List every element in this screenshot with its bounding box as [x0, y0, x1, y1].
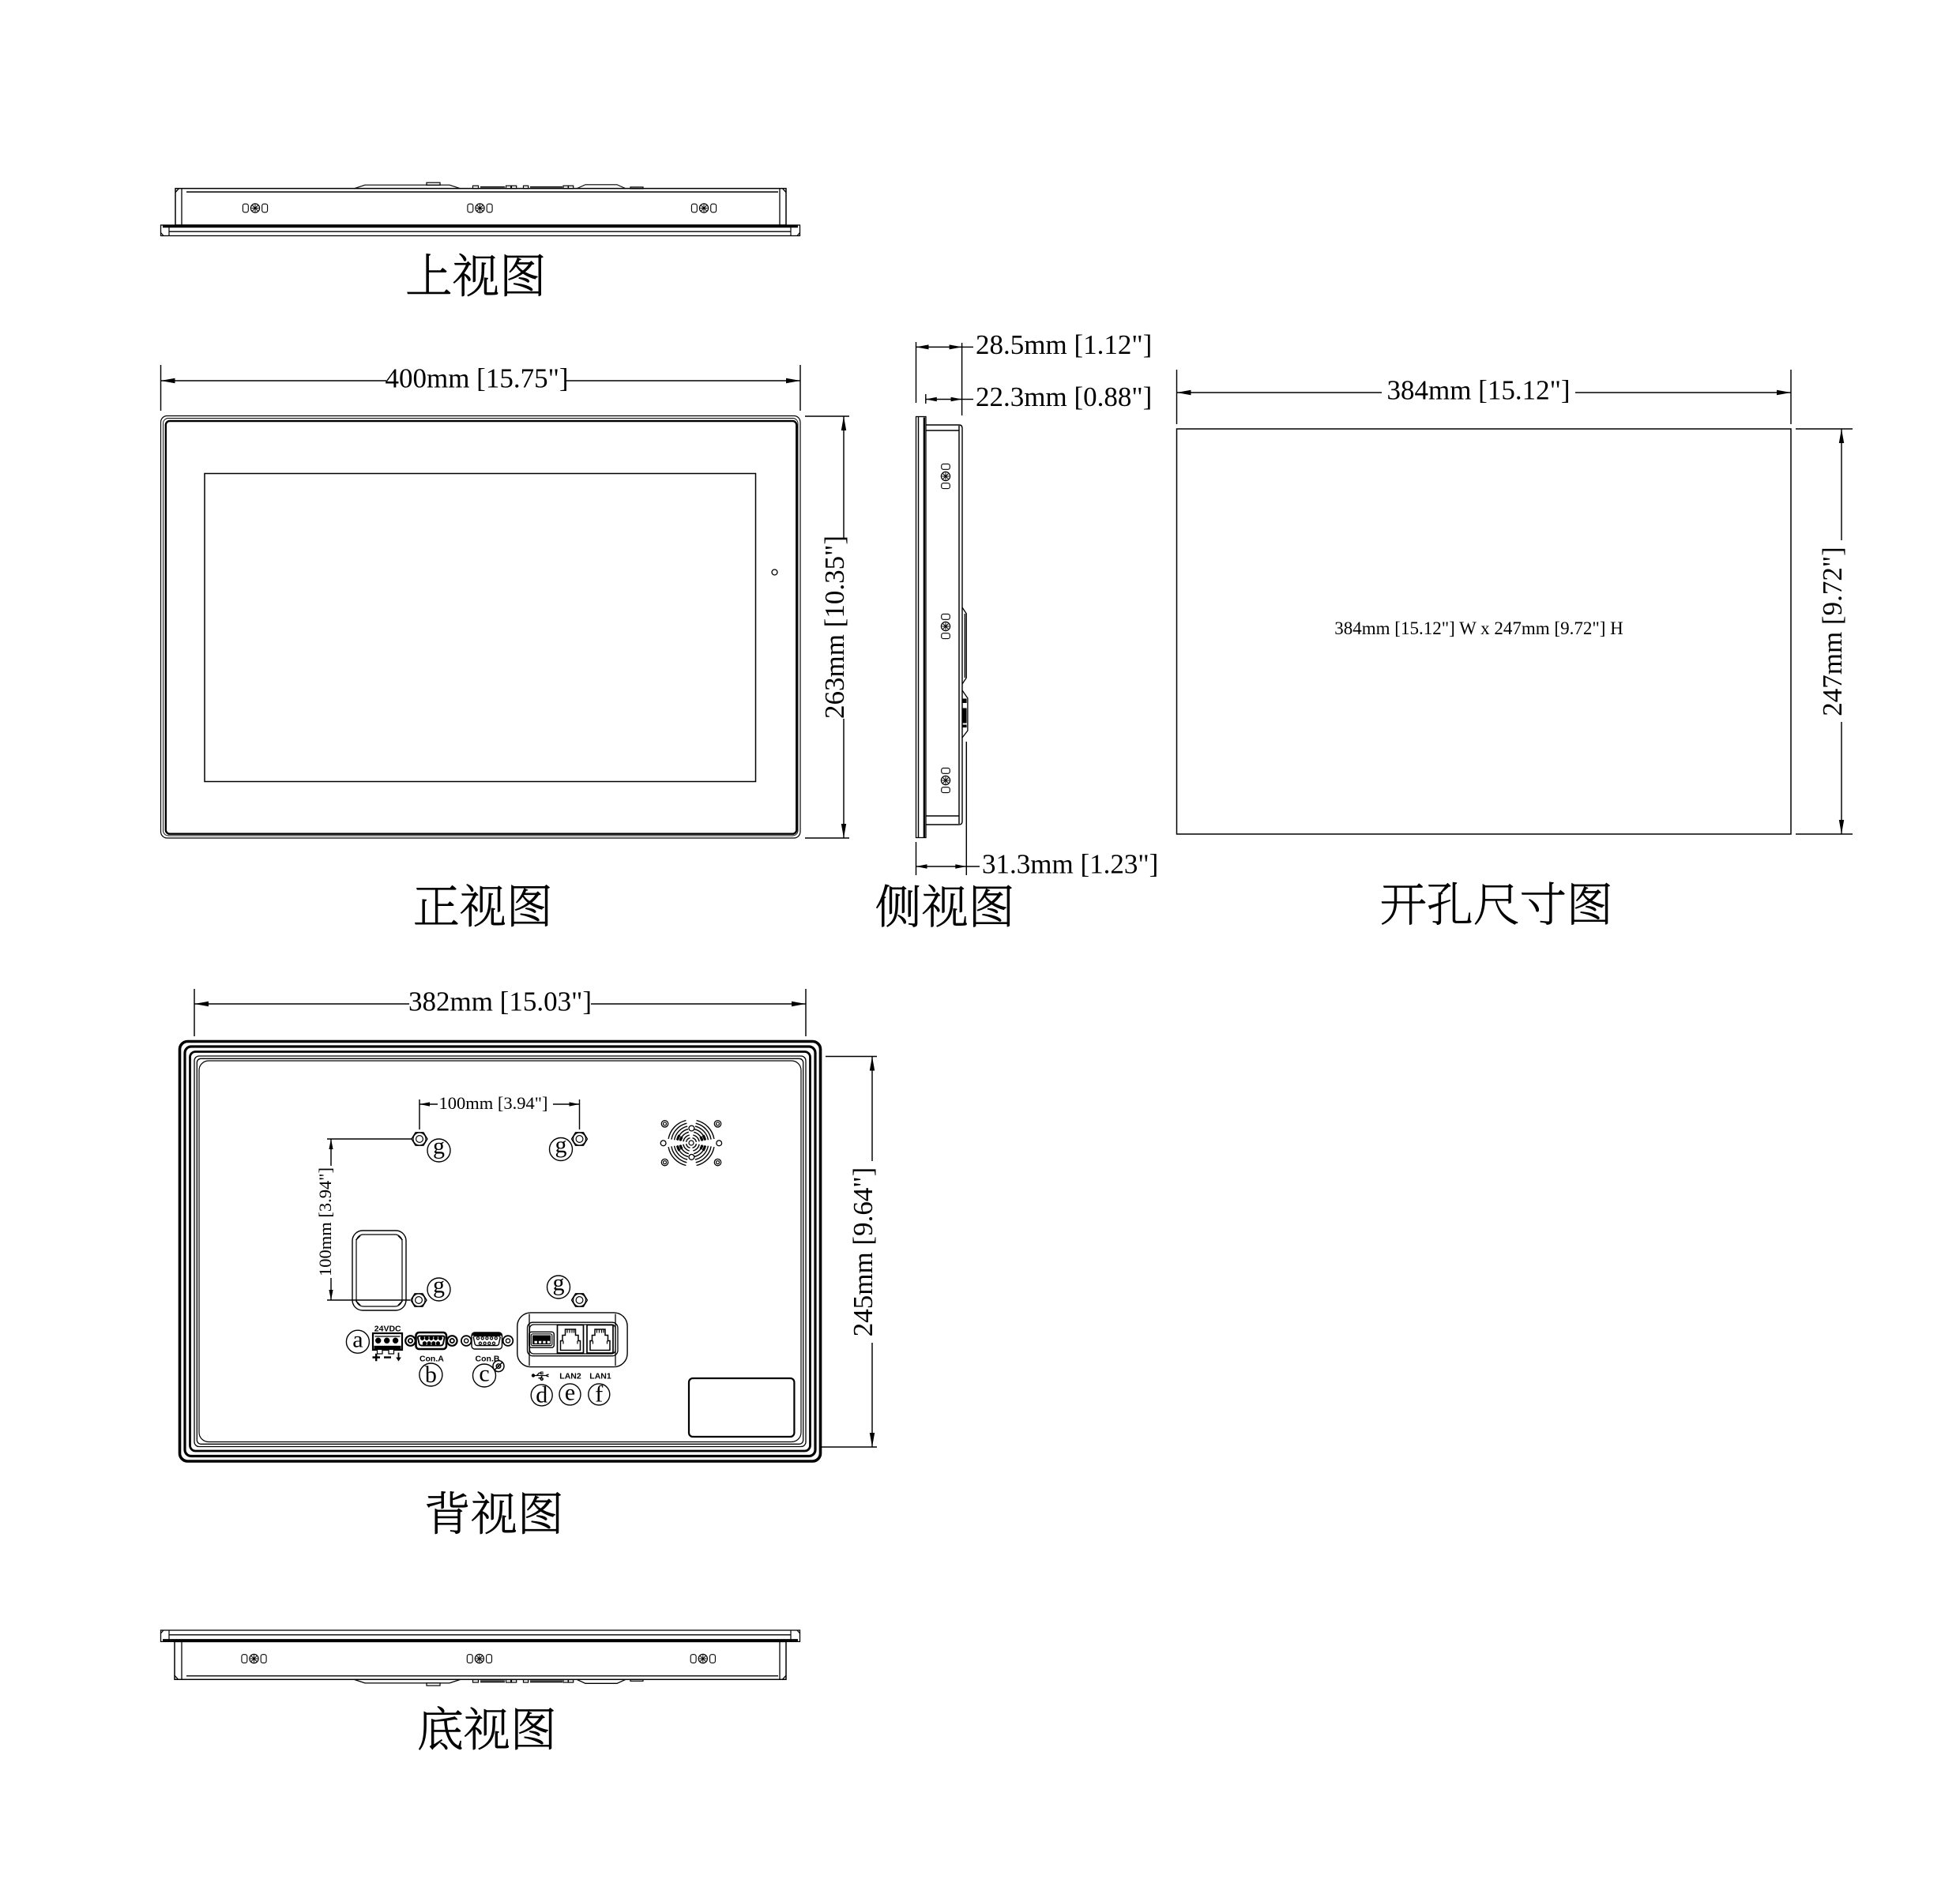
- svg-text:263mm [10.35"]: 263mm [10.35"]: [819, 536, 850, 719]
- svg-text:a: a: [352, 1327, 363, 1353]
- svg-text:d: d: [536, 1382, 547, 1408]
- svg-text:100mm [3.94"]: 100mm [3.94"]: [315, 1167, 335, 1276]
- svg-text:28.5mm [1.12"]: 28.5mm [1.12"]: [976, 329, 1152, 360]
- svg-text:384mm [15.12"]: 384mm [15.12"]: [1386, 375, 1570, 406]
- svg-text:245mm [9.64"]: 245mm [9.64"]: [848, 1167, 878, 1337]
- svg-text:LAN1: LAN1: [589, 1371, 611, 1381]
- svg-text:f: f: [595, 1381, 603, 1408]
- svg-text:b: b: [425, 1362, 437, 1388]
- svg-text:e: e: [565, 1379, 575, 1405]
- svg-text:g: g: [433, 1272, 445, 1299]
- svg-text:382mm [15.03"]: 382mm [15.03"]: [408, 987, 592, 1017]
- svg-text:24VDC: 24VDC: [374, 1325, 401, 1334]
- svg-text:g: g: [433, 1133, 445, 1159]
- svg-text:100mm [3.94"]: 100mm [3.94"]: [439, 1093, 548, 1113]
- svg-text:31.3mm [1.23"]: 31.3mm [1.23"]: [982, 849, 1158, 880]
- svg-text:g: g: [555, 1132, 567, 1158]
- svg-text:c: c: [479, 1361, 489, 1387]
- svg-text:384mm [15.12"] W x 247mm [9.72: 384mm [15.12"] W x 247mm [9.72"] H: [1334, 618, 1623, 638]
- svg-text:22.3mm [0.88"]: 22.3mm [0.88"]: [976, 381, 1152, 412]
- svg-text:g: g: [553, 1270, 565, 1296]
- svg-text:400mm [15.75"]: 400mm [15.75"]: [385, 363, 568, 394]
- svg-text:247mm [9.72"]: 247mm [9.72"]: [1817, 547, 1848, 716]
